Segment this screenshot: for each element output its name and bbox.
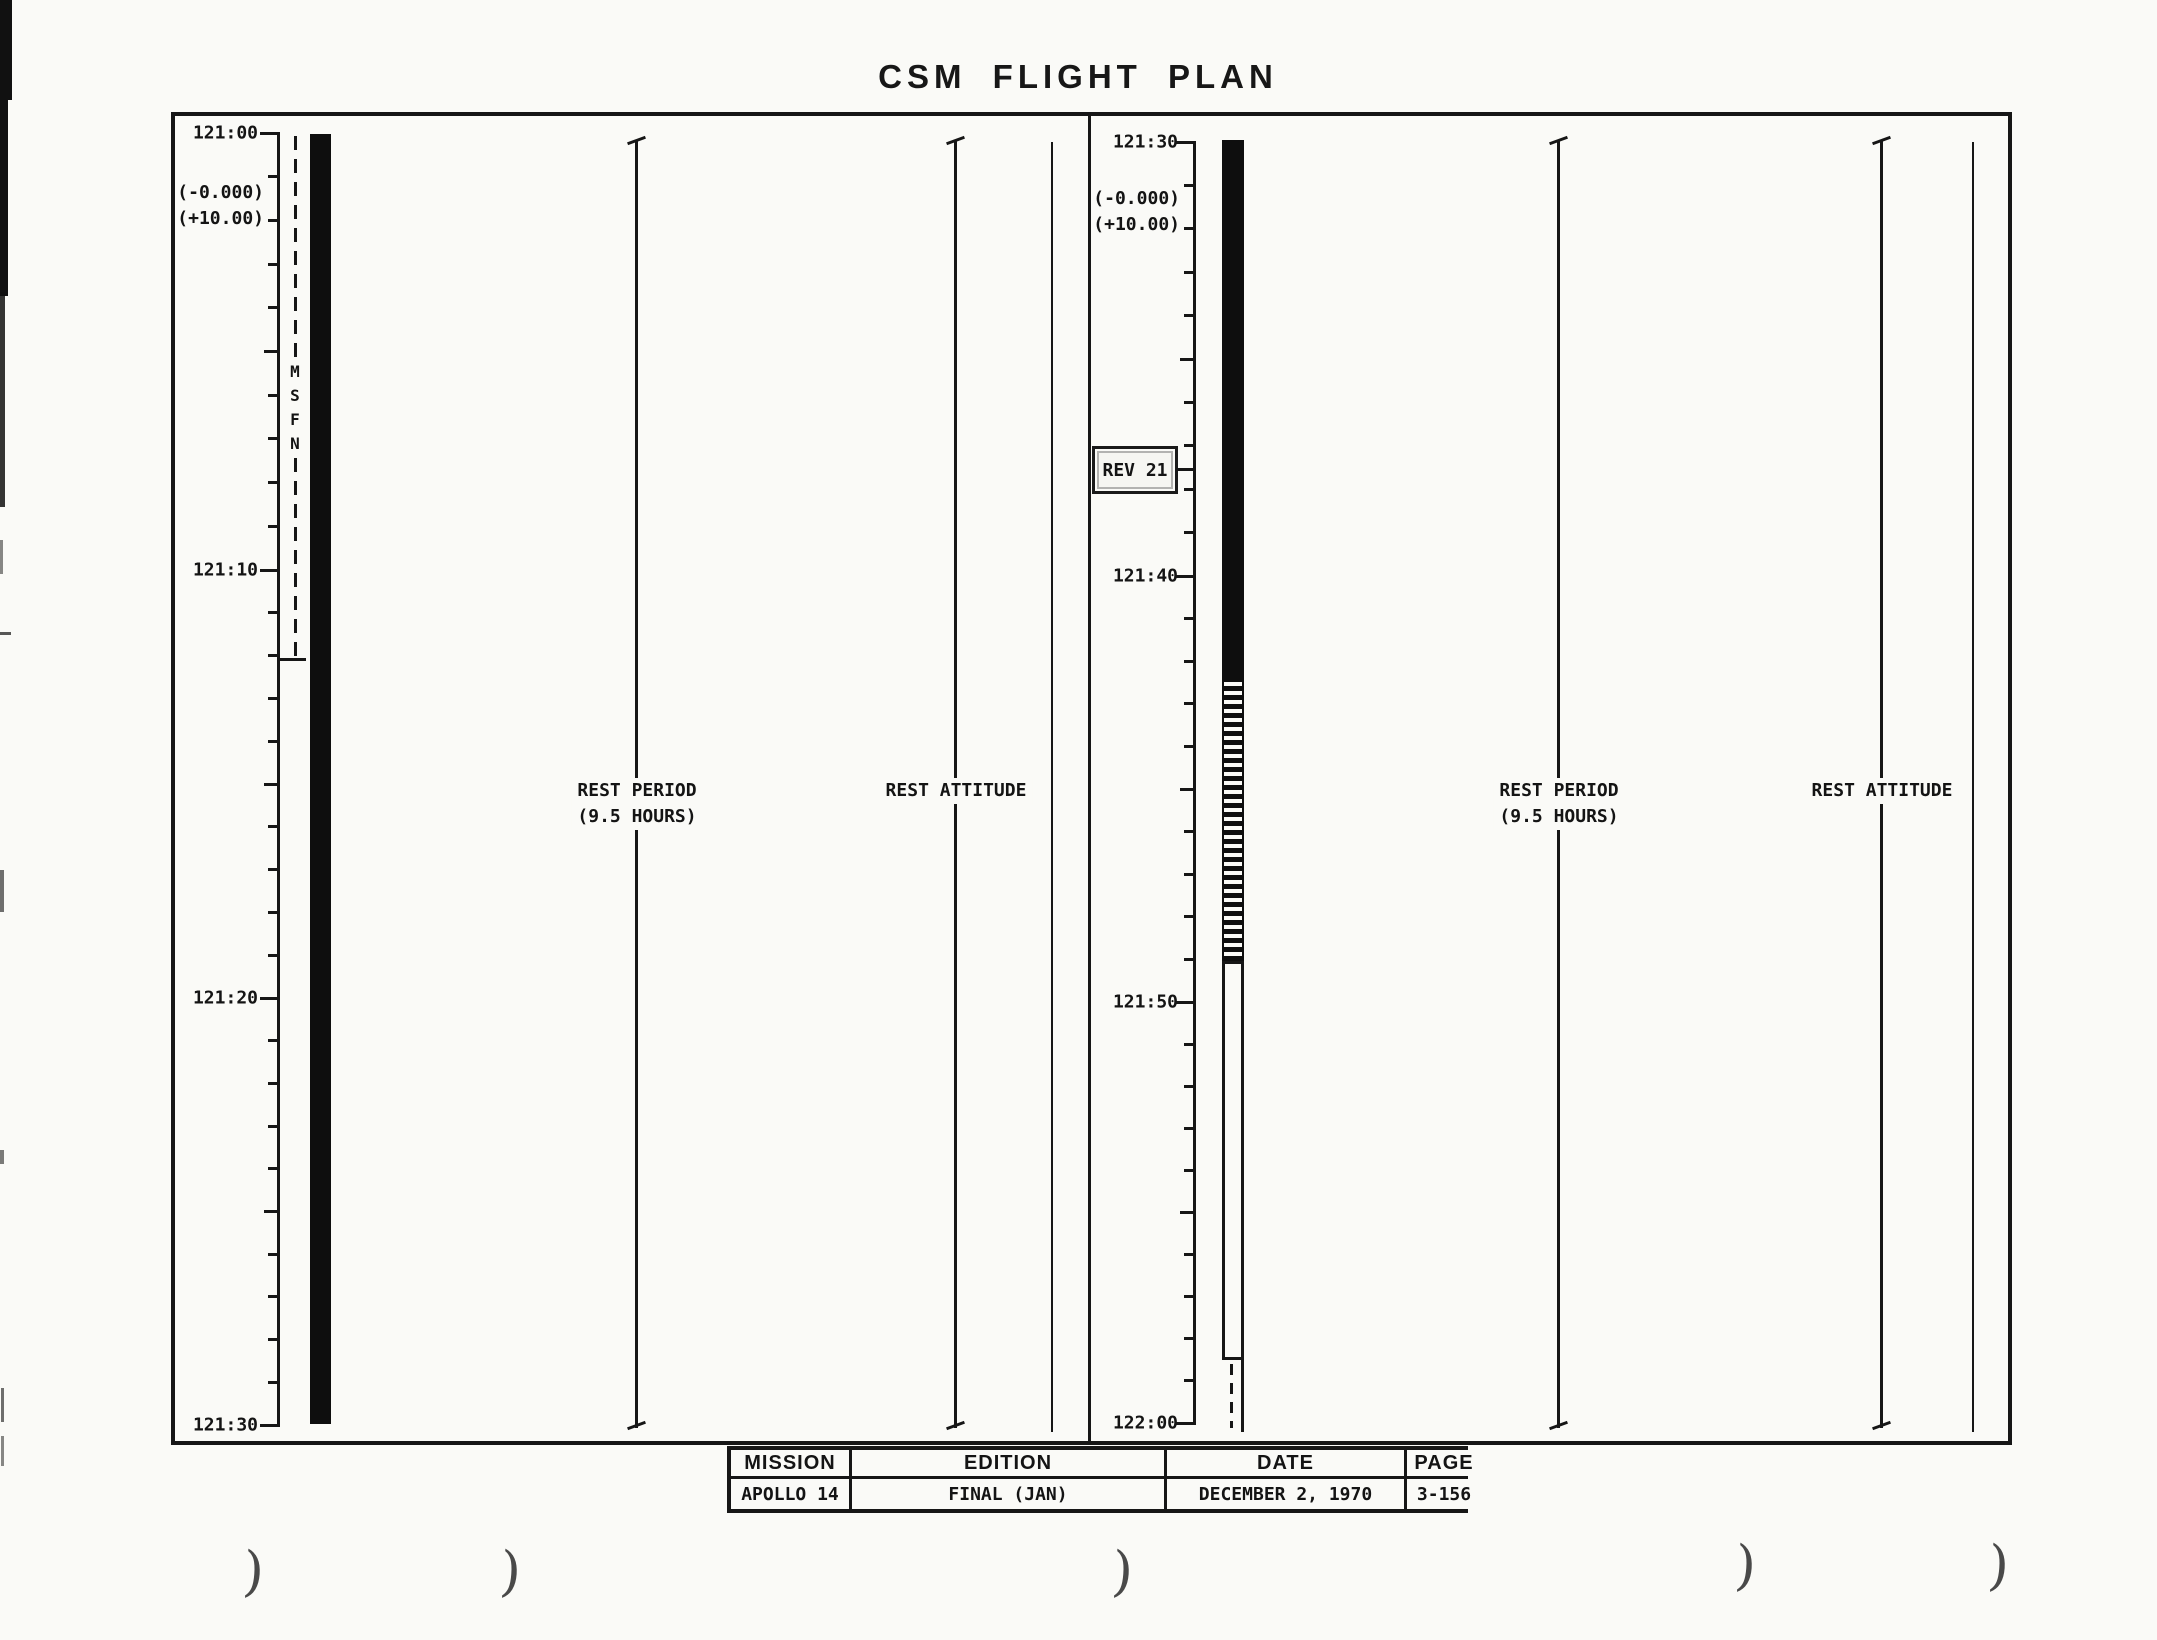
scanned-flight-plan-page: CSM FLIGHT PLAN 121:00 121:10 121:20 121… [0, 0, 2157, 1640]
timeline-activity-bar [310, 134, 331, 1424]
time-label: 121:30 [160, 1415, 258, 1436]
time-label: 121:00 [160, 123, 258, 144]
timeline-activity-bar-solid [1222, 140, 1244, 677]
scan-edge-mark [0, 632, 11, 635]
minor-tick [268, 740, 280, 743]
minor-tick [1184, 401, 1196, 404]
minor-tick [1184, 1085, 1196, 1088]
minor-tick [1184, 702, 1196, 705]
minor-tick [268, 1082, 280, 1085]
minor-tick [268, 1039, 280, 1042]
major-tick [260, 997, 280, 1000]
minor-tick [1184, 1295, 1196, 1298]
minor-tick [1184, 1253, 1196, 1256]
msfn-label: MSFN [287, 360, 303, 456]
footer-header-mission: MISSION [731, 1450, 849, 1476]
footer-table: MISSION EDITION DATE PAGE APOLLO 14 FINA… [727, 1446, 1468, 1513]
minor-tick [268, 394, 280, 397]
timeline-bar-dashed-tail [1230, 1364, 1233, 1428]
scan-curl-mark [1986, 1533, 2011, 1597]
scan-edge-mark [0, 96, 8, 296]
minor-tick [264, 350, 280, 353]
footer-value-date: DECEMBER 2, 1970 [1167, 1479, 1404, 1509]
minor-tick [268, 219, 280, 222]
minor-tick [264, 783, 280, 786]
timeline-bar-edge-tail [1241, 1360, 1244, 1432]
minor-tick [1184, 227, 1196, 230]
major-tick [260, 132, 280, 135]
rev-21-label: REV 21 [1102, 460, 1167, 481]
major-tick [1176, 141, 1196, 144]
minor-tick [1184, 444, 1196, 447]
msfn-coverage-line [294, 458, 297, 660]
timeline-activity-bar-open [1222, 961, 1244, 1360]
chart-frame [171, 112, 2012, 1445]
minor-tick [268, 954, 280, 957]
minor-tick [268, 175, 280, 178]
attitude-value: (+10.00) [152, 208, 264, 229]
column-rule [1972, 142, 1974, 1432]
msfn-coverage-line [294, 136, 297, 362]
time-label: 122:00 [1080, 1413, 1178, 1434]
major-tick [260, 1424, 280, 1427]
rest-attitude-note: REST ATTITUDE [880, 778, 1033, 804]
time-label: 121:10 [160, 560, 258, 581]
time-label: 121:20 [160, 988, 258, 1009]
scan-edge-mark [1, 1436, 4, 1466]
rest-attitude-label: REST ATTITUDE [886, 778, 1027, 804]
minor-tick [268, 1295, 280, 1298]
minor-tick [268, 481, 280, 484]
minor-tick [268, 611, 280, 614]
scan-curl-mark [1733, 1533, 1758, 1597]
rest-period-note: REST PERIOD (9.5 HOURS) [571, 778, 702, 830]
footer-value-page: 3-156 [1407, 1479, 1481, 1509]
minor-tick [1184, 1127, 1196, 1130]
time-label: 121:50 [1080, 992, 1178, 1013]
minor-tick [1184, 1043, 1196, 1046]
minor-tick [268, 825, 280, 828]
major-tick [1176, 1422, 1196, 1425]
minor-tick [268, 525, 280, 528]
rev-21-badge: REV 21 [1092, 446, 1178, 494]
minor-tick [1184, 488, 1196, 491]
rest-period-label: REST PERIOD [1499, 778, 1618, 804]
column-rule [1051, 142, 1053, 1432]
minor-tick [1184, 873, 1196, 876]
minor-tick [1184, 184, 1196, 187]
minor-tick [268, 1167, 280, 1170]
rest-period-duration: (9.5 HOURS) [1499, 804, 1618, 830]
attitude-value: (-0.000) [152, 182, 264, 203]
left-time-axis [277, 133, 280, 1425]
footer-header-page: PAGE [1407, 1450, 1481, 1476]
time-label: 121:30 [1080, 132, 1178, 153]
attitude-value: (-0.000) [1068, 188, 1180, 209]
minor-tick [1184, 915, 1196, 918]
minor-tick [1184, 271, 1196, 274]
scan-edge-mark [1, 1388, 4, 1422]
major-tick [260, 569, 280, 572]
right-time-axis [1193, 142, 1196, 1423]
minor-tick [268, 437, 280, 440]
minor-tick [1184, 745, 1196, 748]
attitude-value: (+10.00) [1068, 214, 1180, 235]
minor-tick [1184, 531, 1196, 534]
scan-edge-mark [0, 0, 12, 100]
minor-tick [1184, 1169, 1196, 1172]
footer-value-mission: APOLLO 14 [731, 1479, 849, 1509]
scan-edge-mark [0, 1150, 4, 1164]
minor-tick [1184, 660, 1196, 663]
minor-tick [1184, 830, 1196, 833]
minor-tick [1180, 788, 1196, 791]
minor-tick [268, 1338, 280, 1341]
scan-curl-mark [241, 1539, 266, 1603]
minor-tick [1184, 617, 1196, 620]
minor-tick [268, 1381, 280, 1384]
scan-edge-mark [0, 540, 3, 574]
minor-tick [268, 1125, 280, 1128]
footer-value-edition: FINAL (JAN) [852, 1479, 1164, 1509]
timeline-activity-bar-hatched [1222, 677, 1244, 961]
time-label: 121:40 [1080, 566, 1178, 587]
footer-header-date: DATE [1167, 1450, 1404, 1476]
minor-tick [268, 1253, 280, 1256]
minor-tick [1184, 314, 1196, 317]
minor-tick [268, 868, 280, 871]
footer-header-edition: EDITION [852, 1450, 1164, 1476]
rest-period-label: REST PERIOD [577, 778, 696, 804]
minor-tick [1184, 1379, 1196, 1382]
rest-period-note: REST PERIOD (9.5 HOURS) [1493, 778, 1624, 830]
minor-tick [268, 911, 280, 914]
scan-curl-mark [1110, 1539, 1135, 1603]
msfn-end-bracket [279, 658, 306, 661]
major-tick [1176, 575, 1196, 578]
minor-tick [268, 306, 280, 309]
scan-edge-mark [0, 292, 5, 507]
rest-period-duration: (9.5 HOURS) [577, 804, 696, 830]
minor-tick [1180, 1211, 1196, 1214]
panel-divider [1088, 112, 1091, 1445]
page-title: CSM FLIGHT PLAN [878, 58, 1278, 96]
minor-tick [268, 654, 280, 657]
rest-attitude-note: REST ATTITUDE [1806, 778, 1959, 804]
minor-tick [268, 697, 280, 700]
rest-attitude-label: REST ATTITUDE [1812, 778, 1953, 804]
major-tick [1176, 1001, 1196, 1004]
minor-tick [1180, 358, 1196, 361]
scan-curl-mark [498, 1539, 523, 1603]
rev-21-connector [1176, 468, 1196, 471]
minor-tick [1184, 958, 1196, 961]
minor-tick [1184, 1337, 1196, 1340]
scan-edge-mark [0, 870, 4, 912]
minor-tick [264, 1210, 280, 1213]
minor-tick [268, 263, 280, 266]
